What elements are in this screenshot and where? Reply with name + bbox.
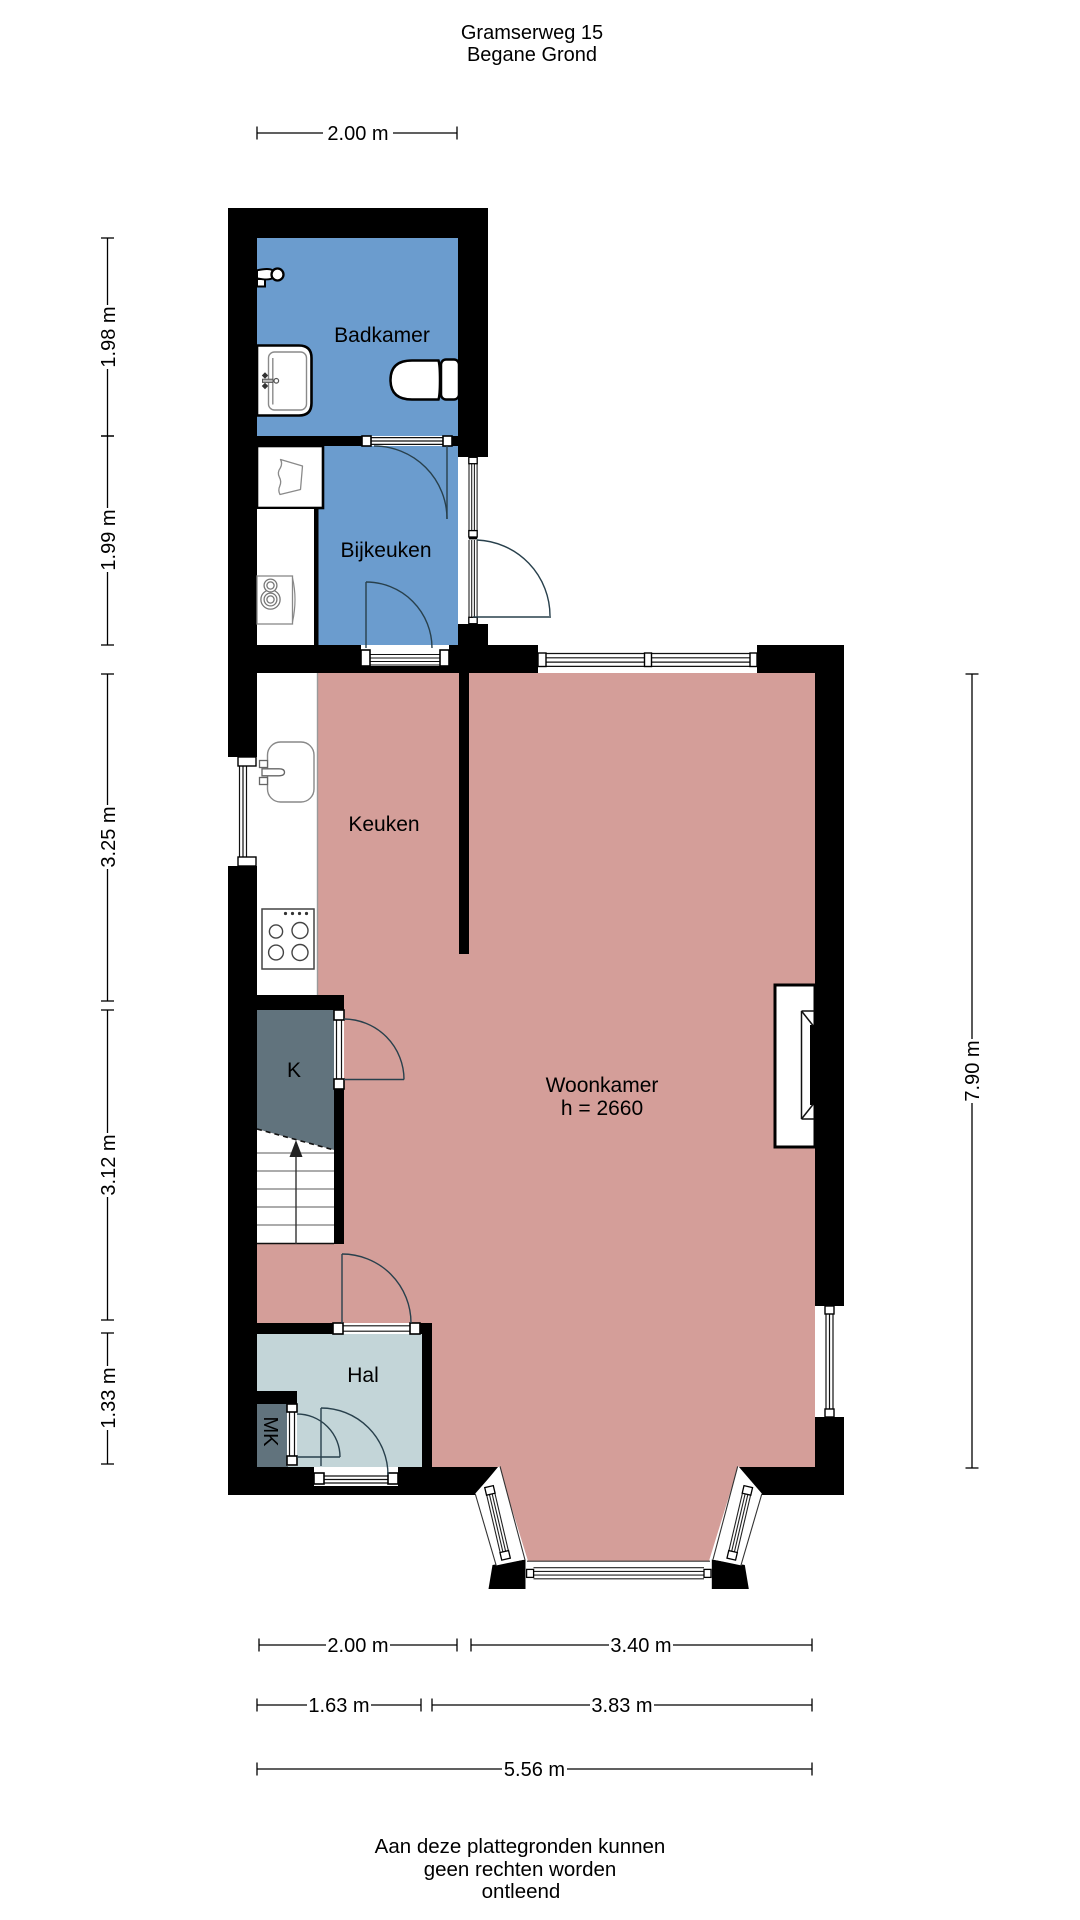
svg-text:Aan deze plattegronden kunnen: Aan deze plattegronden kunnen xyxy=(375,1835,666,1858)
svg-text:Keuken: Keuken xyxy=(348,813,419,836)
svg-text:5.56 m: 5.56 m xyxy=(504,1759,565,1781)
svg-text:2.00 m: 2.00 m xyxy=(327,123,388,145)
svg-text:ontleend: ontleend xyxy=(482,1880,561,1903)
svg-text:Hal: Hal xyxy=(347,1364,379,1387)
svg-text:3.83 m: 3.83 m xyxy=(591,1695,652,1717)
svg-text:1.33 m: 1.33 m xyxy=(98,1367,120,1428)
svg-text:Bijkeuken: Bijkeuken xyxy=(340,539,431,562)
svg-text:7.90 m: 7.90 m xyxy=(962,1040,984,1101)
svg-text:2.00 m: 2.00 m xyxy=(327,1635,388,1657)
svg-text:Begane Grond: Begane Grond xyxy=(467,44,597,66)
svg-text:MK: MK xyxy=(259,1417,281,1448)
svg-text:3.40 m: 3.40 m xyxy=(610,1635,671,1657)
svg-text:3.12 m: 3.12 m xyxy=(98,1134,120,1195)
svg-text:Gramserweg 15: Gramserweg 15 xyxy=(461,22,603,44)
svg-text:Badkamer: Badkamer xyxy=(334,324,430,347)
svg-text:geen rechten worden: geen rechten worden xyxy=(424,1858,617,1881)
svg-text:h = 2660: h = 2660 xyxy=(561,1097,643,1120)
svg-text:K: K xyxy=(287,1059,301,1082)
svg-text:3.25 m: 3.25 m xyxy=(98,806,120,867)
svg-text:1.63 m: 1.63 m xyxy=(308,1695,369,1717)
svg-text:Woonkamer: Woonkamer xyxy=(546,1074,659,1097)
svg-text:1.98 m: 1.98 m xyxy=(98,306,120,367)
svg-text:1.99 m: 1.99 m xyxy=(98,509,120,570)
